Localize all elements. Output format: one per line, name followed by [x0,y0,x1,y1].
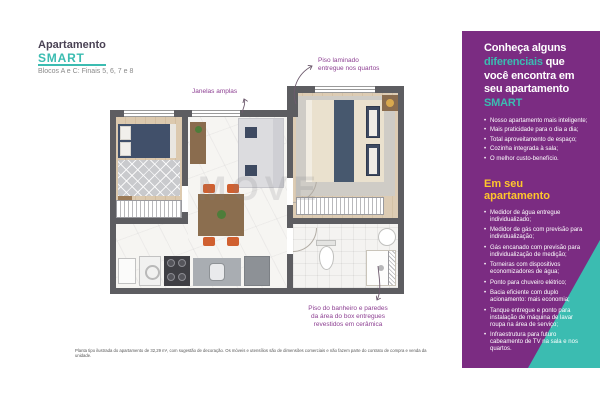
nightstand [382,95,398,111]
panel-title-accent: diferenciais [484,56,543,68]
pillow [366,106,380,138]
tv-sideboard [190,122,206,164]
disclaimer-text: Planta tipo ilustrada do apartamento de … [75,348,440,358]
list-item: Mais praticidade para o dia a dia; [484,127,588,134]
header-rule [38,64,106,66]
list-item: Ponto para chuveiro elétrico; [484,280,588,287]
panel-title: Conheça alguns diferenciais que você enc… [484,42,588,111]
watermark: MOVE [150,170,370,209]
burner-icon [178,259,186,267]
list-item: O melhor custo-benefício. [484,156,588,163]
list-item: Medidor de água entregue individualizado… [484,210,588,224]
laundry-tank [118,258,136,284]
list-item: Cozinha integrada à sala; [484,146,588,153]
window-bedroom-left [124,110,174,117]
panel-title-line: seu apartamento [484,83,588,97]
brochure-page: Apartamento SMART Blocos A e C: Finais 5… [0,0,600,400]
plant-icon [195,126,202,133]
bed-fold [170,124,176,158]
apartment-features-list: Medidor de água entregue individualizado… [484,210,588,354]
dining-chair [227,237,239,246]
list-item: Tanque entregue e ponto para instalação … [484,308,588,329]
wall-bedroom-bath-divider [287,218,404,224]
list-item: Medidor de gás com previsão para individ… [484,227,588,241]
panel-title-line: você encontra em [484,70,588,84]
panel-title-line: Conheça alguns [484,42,588,56]
burner-icon [167,259,175,267]
list-item: Infraestrutura para futuro cabeamento de… [484,332,588,353]
section-heading: Em seu apartamento [484,178,588,202]
list-item: Bacia eficiente com duplo acionamento: m… [484,290,588,304]
apartment-brand: SMART [38,51,85,65]
wall-under-bedroom-left [110,218,188,224]
plant-icon [217,210,226,219]
kitchen-counter [193,258,241,286]
label-laminate: Piso laminado entregue nos quartos [318,57,379,73]
wall-hall-a [287,86,293,178]
shower-box [366,250,396,286]
wall-bottom [110,288,404,294]
info-panel: Conheça alguns diferenciais que você enc… [462,31,600,368]
list-item: Nosso apartamento mais inteligente; [484,118,588,125]
list-item: Torneiras com dispositivos economizadore… [484,262,588,276]
differentials-list: Nosso apartamento mais inteligente; Mais… [484,118,588,163]
floor-plan: MOVE [110,82,408,298]
pillow [120,126,131,140]
stove [164,256,190,286]
single-bed [118,124,176,158]
sofa-cushion [245,127,257,138]
wall-right [398,86,404,294]
bathroom-sink [378,228,396,246]
lamp-icon [386,99,394,107]
dining-chair [203,237,215,246]
fridge [244,256,270,286]
list-item: Gás encanado com previsão para individua… [484,245,588,259]
panel-title-brand: SMART [484,97,588,111]
washing-machine [139,256,161,286]
panel-title-rest: que [543,56,565,68]
window-bedroom-right [315,86,375,93]
shower-door [388,251,395,285]
blocks-subtitle: Blocos A e C: Finais 5, 6, 7 e 8 [38,68,133,75]
window-living [192,110,240,117]
kitchen-sink [209,263,225,281]
burner-icon [167,273,175,281]
apartment-kicker: Apartamento [38,39,106,51]
wall-hall-c [287,254,293,288]
label-bathroom: Piso do banheiro e paredes da área do bo… [298,305,398,329]
label-windows: Janelas amplas [192,88,237,96]
list-item: Total aproveitamento de espaço; [484,137,588,144]
panel-title-line: diferenciais que [484,56,588,70]
burner-icon [178,273,186,281]
pillow [120,142,131,156]
shower-drain [378,265,384,271]
